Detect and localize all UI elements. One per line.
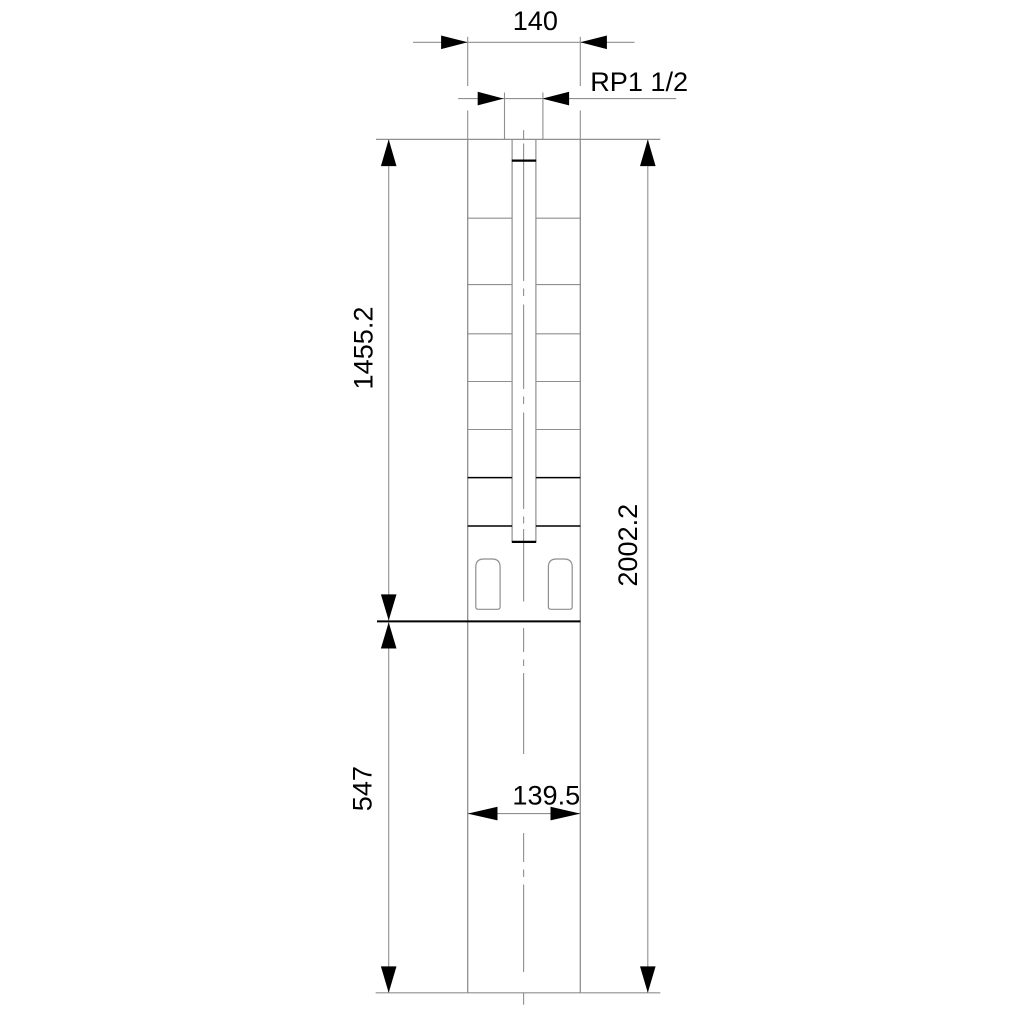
svg-text:2002.2: 2002.2	[612, 504, 643, 587]
svg-text:140: 140	[513, 5, 558, 36]
svg-text:RP1 1/2: RP1 1/2	[590, 66, 688, 97]
svg-text:1455.2: 1455.2	[347, 307, 378, 390]
svg-text:139.5: 139.5	[512, 780, 580, 811]
svg-text:547: 547	[347, 766, 378, 811]
